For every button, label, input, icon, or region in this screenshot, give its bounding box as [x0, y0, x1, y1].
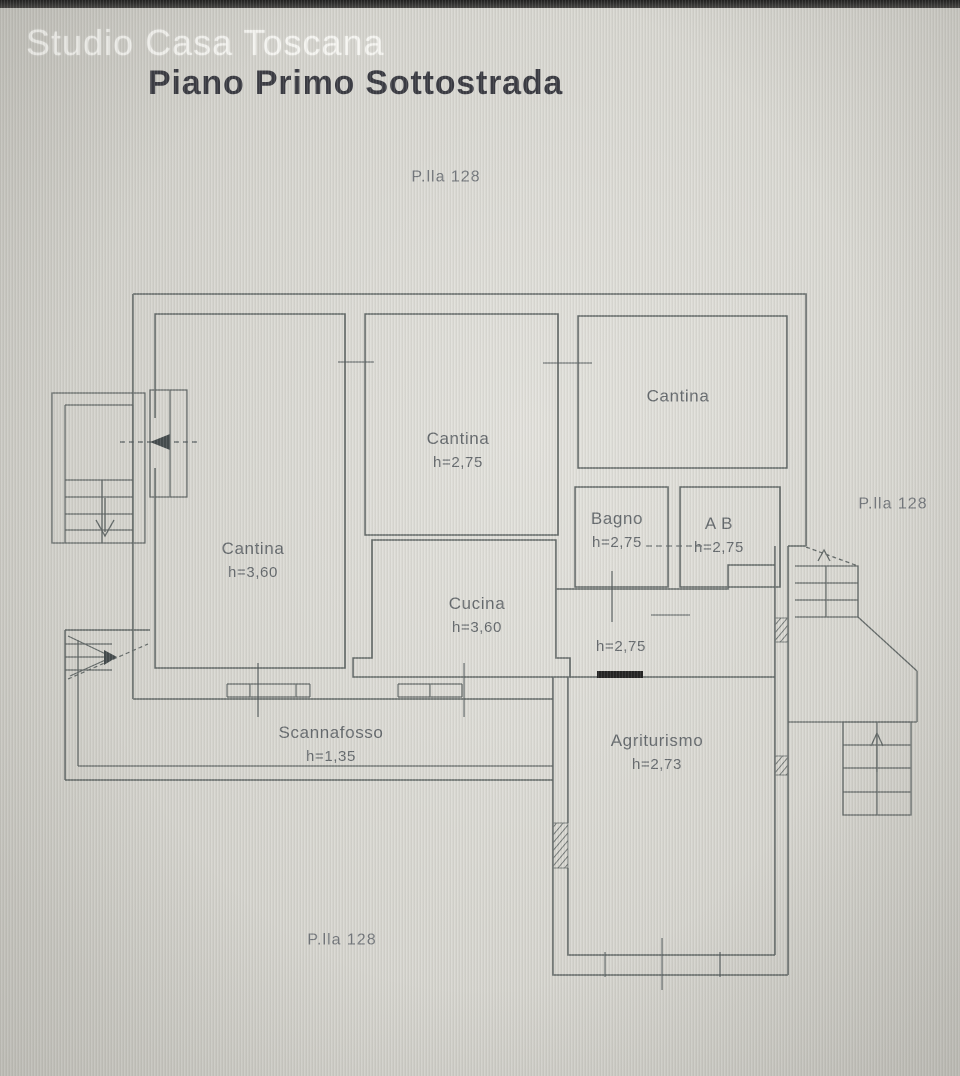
room-name: Cucina: [449, 592, 506, 617]
floor-plan-svg: [0, 0, 960, 1076]
room-height: h=2,73: [611, 753, 704, 775]
room-label-cucina: Cucina h=3,60: [449, 592, 506, 638]
screen-top-bezel: [0, 0, 960, 8]
room-name: Cantina: [647, 385, 710, 410]
stair-right-lower: [843, 722, 911, 815]
room-label-disimpegno: h=2,75: [596, 636, 646, 658]
parcel-label-top: P.lla 128: [411, 165, 480, 188]
stair-right-landing: [788, 547, 917, 722]
room-label-ab: A B h=2,75: [694, 512, 744, 558]
room-label-cantina-left: Cantina h=3,60: [222, 537, 285, 583]
room-height: h=2,75: [596, 636, 646, 658]
room-height: h=2,75: [694, 536, 744, 558]
room-name: Cantina: [427, 427, 490, 452]
stair-top-left: [52, 390, 187, 543]
door-arrow-icon: [150, 434, 170, 450]
windows: [227, 684, 462, 697]
room-label-cantina-middle: Cantina h=2,75: [427, 427, 490, 473]
parcel-label-bottom: P.lla 128: [307, 928, 376, 951]
page-title: Piano Primo Sottostrada: [148, 64, 563, 103]
room-label-cantina-right: Cantina: [647, 385, 710, 410]
room-name: A B: [694, 512, 744, 537]
room-label-agriturismo: Agriturismo h=2,73: [611, 729, 704, 775]
parcel-label-right: P.lla 128: [858, 492, 927, 515]
room-name: Agriturismo: [611, 729, 704, 754]
room-height: h=3,60: [222, 561, 285, 583]
room-height: h=3,60: [449, 616, 506, 638]
door-swing-left: [120, 434, 200, 450]
room-height: h=2,75: [427, 451, 490, 473]
screen-photo: Studio Casa Toscana Piano Primo Sottostr…: [0, 0, 960, 1076]
room-label-bagno: Bagno h=2,75: [591, 507, 643, 553]
room-name: Cantina: [222, 537, 285, 562]
room-name: Bagno: [591, 507, 643, 532]
room-height: h=1,35: [279, 745, 384, 767]
door-threshold: [597, 671, 643, 678]
floor-plan: P.lla 128 P.lla 128 P.lla 128 Cantina h=…: [0, 0, 960, 1076]
room-label-scannafosso: Scannafosso h=1,35: [279, 721, 384, 767]
room-height: h=2,75: [591, 531, 643, 553]
watermark: Studio Casa Toscana: [26, 22, 385, 64]
room-name: Scannafosso: [279, 721, 384, 746]
winder-arrow-icon: [104, 650, 117, 665]
stair-up-arrow: [871, 733, 883, 772]
